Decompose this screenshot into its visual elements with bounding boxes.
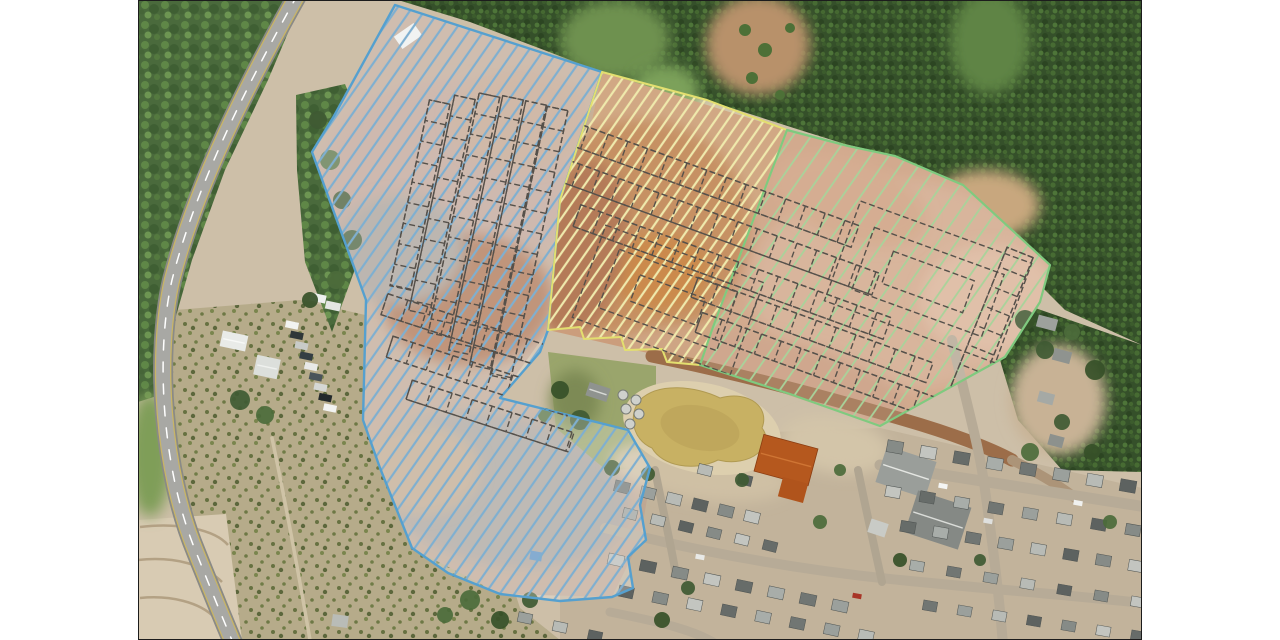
house-roof	[1030, 543, 1047, 556]
house-roof	[1119, 479, 1137, 494]
house-roof	[1057, 584, 1073, 596]
house-roof	[965, 531, 982, 544]
tree	[437, 607, 453, 623]
house-roof	[922, 600, 938, 612]
tree	[893, 553, 907, 567]
house-roof	[1093, 590, 1109, 602]
house-roof	[1053, 468, 1071, 483]
house-roof	[946, 566, 962, 578]
house-roof	[1020, 578, 1036, 590]
tree	[256, 406, 274, 424]
tank	[631, 395, 641, 405]
tree	[1036, 341, 1054, 359]
tree	[1021, 443, 1039, 461]
tree	[834, 464, 846, 476]
house-roof	[992, 610, 1008, 622]
aerial-orthophoto	[138, 0, 1142, 640]
tank	[618, 390, 628, 400]
tree	[1084, 444, 1100, 460]
house-roof	[1086, 473, 1104, 488]
house-roof	[953, 451, 971, 466]
tree	[309, 111, 327, 129]
house-roof	[986, 456, 1004, 471]
tree	[1103, 515, 1117, 529]
house-roof	[1095, 554, 1112, 567]
tree	[302, 292, 318, 308]
house-roof	[919, 445, 937, 460]
house-roof	[1022, 507, 1039, 520]
tree	[327, 271, 345, 289]
tank	[634, 409, 644, 419]
tree	[1054, 414, 1070, 430]
house-roof	[932, 526, 949, 539]
house-roof	[1063, 548, 1080, 561]
house-roof	[983, 572, 999, 584]
house-roof	[900, 520, 917, 533]
tank	[621, 404, 631, 414]
house-roof	[997, 537, 1014, 550]
house-roof	[1026, 615, 1042, 627]
bush-top-4	[746, 72, 758, 84]
house-roof	[1130, 630, 1142, 640]
house-roof	[919, 491, 936, 504]
tree	[735, 473, 749, 487]
scrub-shed	[331, 614, 349, 628]
house-roof	[909, 560, 925, 572]
tree	[654, 612, 670, 628]
house-roof	[1128, 559, 1142, 572]
tank	[625, 419, 635, 429]
tree	[491, 611, 509, 629]
tree	[551, 381, 569, 399]
house-roof	[885, 485, 902, 498]
page-background	[0, 0, 1280, 640]
site-map-scene	[138, 0, 1142, 640]
house-roof	[953, 496, 970, 509]
tree	[974, 554, 986, 566]
bush-top-1	[739, 24, 751, 36]
bush-top-5	[775, 90, 785, 100]
house-roof	[957, 605, 973, 617]
bush-top-3	[785, 23, 795, 33]
house-roof	[1056, 512, 1073, 525]
house-roof	[1125, 523, 1142, 536]
house-roof	[1019, 462, 1037, 477]
tree	[230, 390, 250, 410]
tree	[460, 590, 480, 610]
house-roof	[988, 502, 1005, 515]
tree	[681, 581, 695, 595]
tree	[813, 515, 827, 529]
tree	[1064, 324, 1080, 340]
house-roof	[886, 440, 904, 455]
bush-top-2	[758, 43, 772, 57]
tree	[1085, 360, 1105, 380]
house-roof	[1061, 620, 1077, 632]
house-roof	[1096, 625, 1112, 637]
